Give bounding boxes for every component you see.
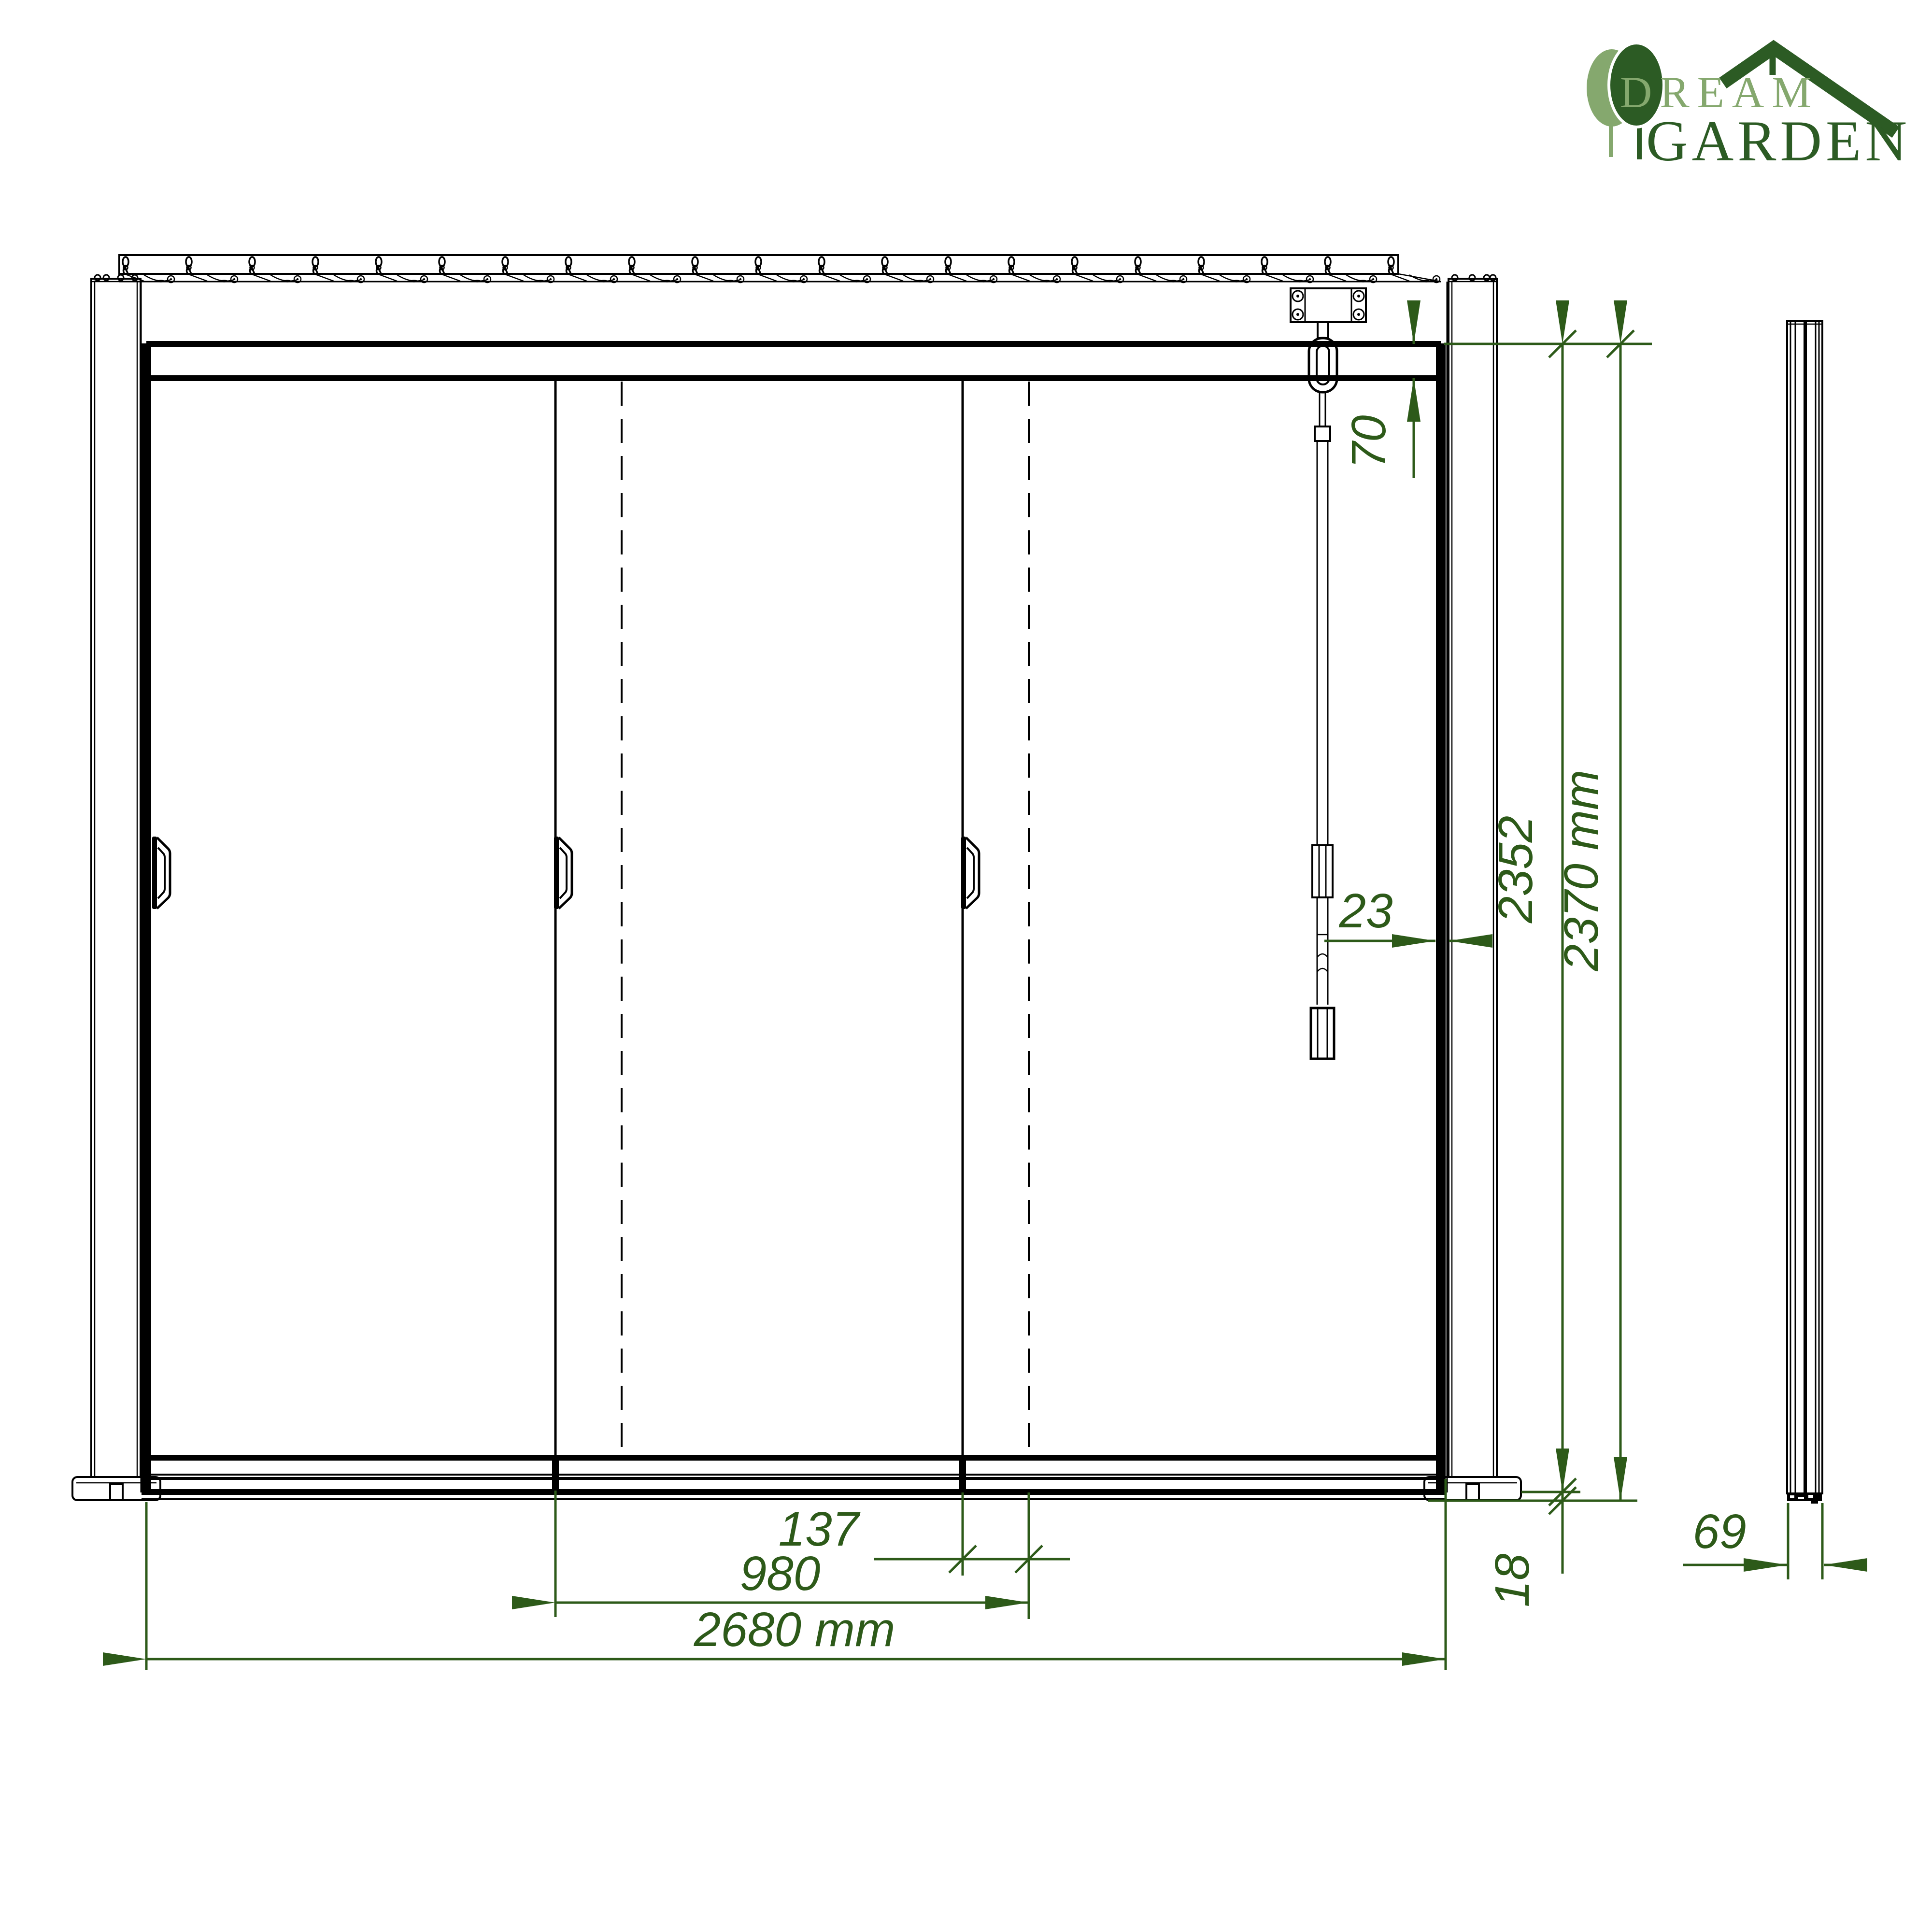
side-view bbox=[1787, 321, 1822, 1504]
dimensions: 70 23 2352 2370 mm 18 bbox=[146, 300, 1863, 1670]
dim-69: 69 bbox=[1683, 1503, 1863, 1579]
dim-980-label: 980 bbox=[740, 1547, 821, 1601]
turnbuckle-sleeve bbox=[1312, 845, 1333, 897]
technical-drawing-page: 70 23 2352 2370 mm 18 bbox=[0, 0, 1932, 1932]
logo-brand-bottom: GARDEN bbox=[1646, 109, 1911, 173]
louver-track bbox=[119, 255, 1441, 283]
front-view bbox=[72, 255, 1521, 1500]
dim-2680-label: 2680 mm bbox=[694, 1603, 895, 1657]
panel-edges bbox=[555, 378, 1029, 1458]
door-frame bbox=[141, 282, 1447, 1492]
left-post bbox=[91, 275, 141, 1477]
frame-right-jamb bbox=[1436, 343, 1446, 1492]
dim-23-label: 23 bbox=[1338, 884, 1392, 938]
door-handle-3 bbox=[961, 837, 979, 909]
dim-69-label: 69 bbox=[1692, 1505, 1746, 1559]
dim-18: 18 bbox=[1485, 1553, 1539, 1607]
dim-2352-label: 2352 bbox=[1489, 816, 1543, 923]
cable-end-sleeve bbox=[1311, 1008, 1334, 1059]
technical-drawing-canvas: 70 23 2352 2370 mm 18 bbox=[0, 0, 1932, 1932]
mount-screws bbox=[1293, 291, 1364, 320]
bottom-track bbox=[142, 1458, 1446, 1499]
dim-18-label: 18 bbox=[1485, 1553, 1539, 1607]
logo: DREAM GARDEN bbox=[1587, 43, 1911, 173]
side-profile-foot bbox=[1787, 1493, 1822, 1504]
dim-2370-label: 2370 mm bbox=[1554, 770, 1608, 972]
cable-coupler bbox=[1315, 426, 1330, 441]
louver-clips bbox=[123, 257, 1394, 274]
door-handle-2 bbox=[554, 837, 572, 909]
door-handles bbox=[152, 837, 979, 909]
frame-left-jamb bbox=[142, 343, 151, 1492]
motor-mount-plate bbox=[1291, 288, 1366, 322]
tension-cable bbox=[1309, 322, 1337, 1059]
side-profile bbox=[1787, 321, 1822, 1493]
dim-70-label: 70 bbox=[1342, 415, 1396, 469]
dim-137: 137 bbox=[779, 1492, 1070, 1619]
panel2-bottom-guide bbox=[552, 1460, 559, 1490]
door-handle-1 bbox=[152, 837, 170, 909]
panel3-bottom-guide bbox=[959, 1460, 966, 1490]
dim-23: 23 bbox=[1324, 884, 1485, 941]
dim-2370: 2370 mm bbox=[1554, 330, 1634, 1501]
dim-70: 70 bbox=[1342, 300, 1414, 478]
